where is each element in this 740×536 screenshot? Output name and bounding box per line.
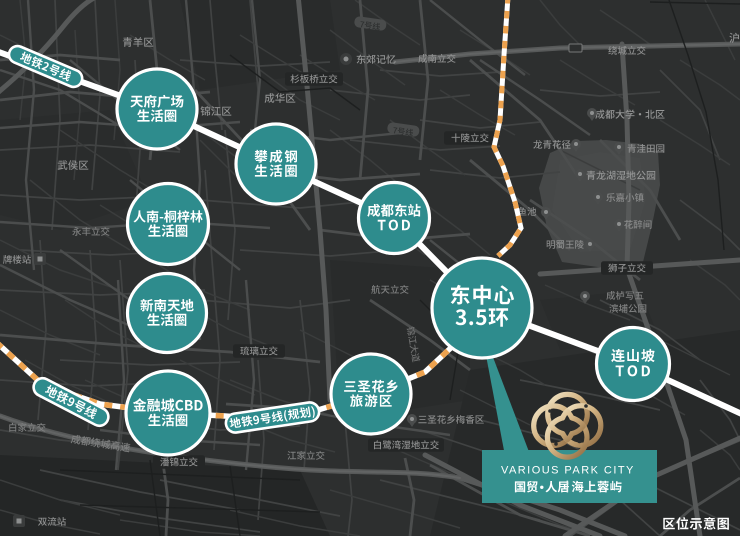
- svg-text:VARIOUS PARK CITY: VARIOUS PARK CITY: [501, 465, 635, 477]
